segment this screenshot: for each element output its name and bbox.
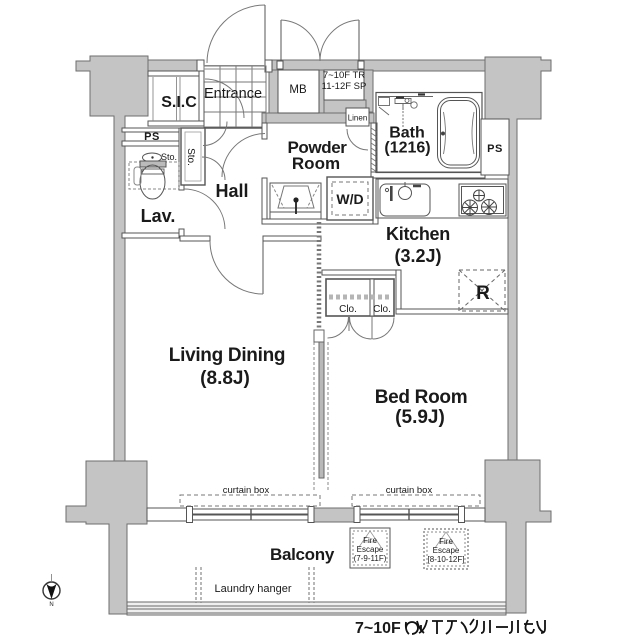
svg-text:Room: Room — [292, 154, 340, 173]
svg-text:PS: PS — [144, 131, 160, 143]
svg-text:[8-10-12F]: [8-10-12F] — [428, 555, 465, 564]
svg-text:Balcony: Balcony — [270, 545, 335, 564]
svg-text:11-12F SP: 11-12F SP — [322, 81, 367, 92]
svg-text:Lav.: Lav. — [141, 206, 176, 226]
svg-text:PS: PS — [487, 143, 503, 155]
svg-text:Sto.: Sto. — [161, 152, 177, 162]
svg-text:Fire: Fire — [363, 536, 377, 545]
svg-text:curtain box: curtain box — [223, 485, 270, 496]
svg-text:Sto.: Sto. — [185, 148, 196, 166]
svg-text:Living Dining: Living Dining — [169, 345, 285, 366]
svg-text:MB: MB — [289, 84, 307, 96]
svg-text:Clo.: Clo. — [339, 304, 357, 315]
svg-text:W/D: W/D — [336, 191, 363, 207]
svg-text:Bed Room: Bed Room — [375, 387, 468, 408]
svg-text:Clo.: Clo. — [373, 304, 391, 315]
svg-text:7~10F: 7~10F — [355, 620, 401, 637]
svg-text:Laundry hanger: Laundry hanger — [214, 583, 291, 595]
svg-text:S.I.C: S.I.C — [161, 94, 197, 111]
svg-text:(8.8J): (8.8J) — [200, 368, 250, 389]
svg-text:(5.9J): (5.9J) — [395, 407, 445, 428]
svg-text:Hall: Hall — [215, 181, 248, 201]
svg-text:7~10F TR: 7~10F TR — [323, 70, 365, 81]
svg-text:Kitchen: Kitchen — [386, 224, 450, 244]
svg-text:(1216): (1216) — [384, 140, 430, 157]
svg-text:Escape: Escape — [357, 545, 384, 554]
svg-text:curtain box: curtain box — [386, 485, 433, 496]
svg-text:Entrance: Entrance — [204, 86, 262, 102]
svg-text:N: N — [49, 602, 53, 608]
svg-text:Escape: Escape — [433, 546, 460, 555]
svg-text:(3.2J): (3.2J) — [394, 246, 441, 266]
svg-text:Linen: Linen — [348, 114, 368, 123]
svg-text:R: R — [476, 283, 490, 304]
svg-text:(7-9-11F): (7-9-11F) — [354, 554, 387, 563]
svg-text:Fire: Fire — [439, 537, 453, 546]
